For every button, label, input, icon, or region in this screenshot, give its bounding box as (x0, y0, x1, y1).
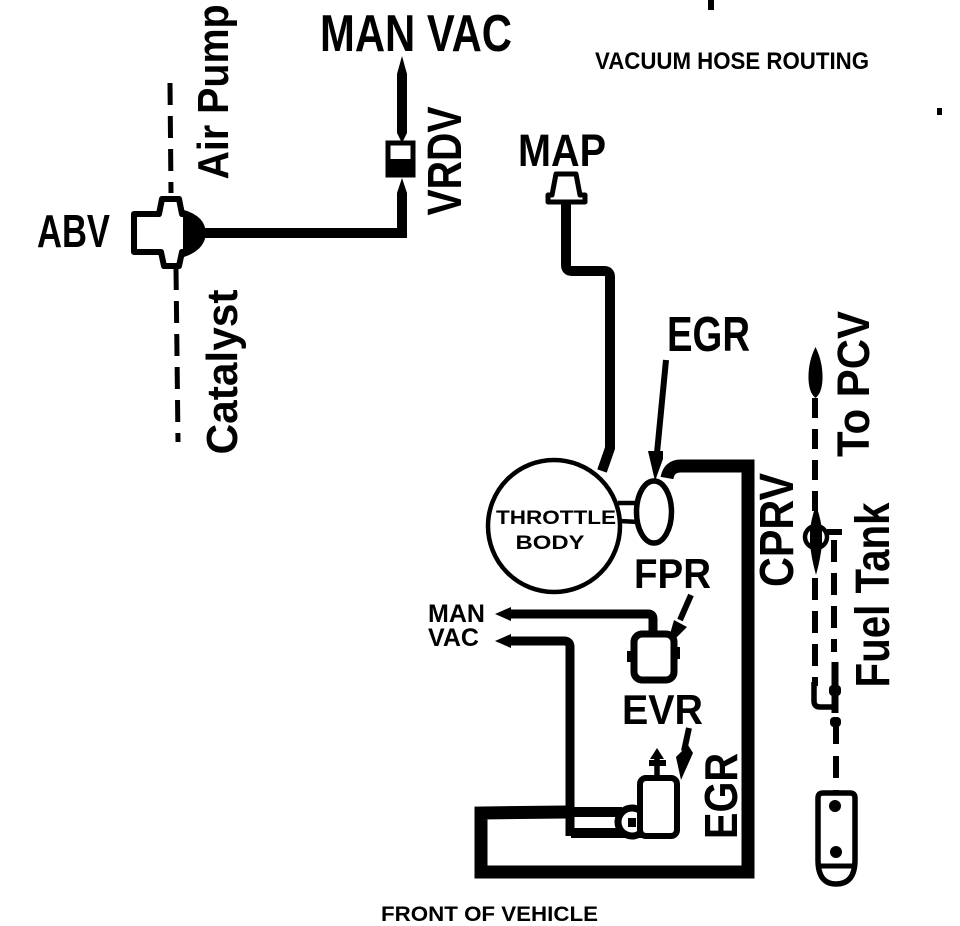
svg-text:VACUUM HOSE ROUTING: VACUUM HOSE ROUTING (595, 48, 869, 75)
svg-text:EGR: EGR (667, 308, 750, 362)
svg-text:To PCV: To PCV (828, 311, 879, 457)
svg-text:THROTTLE: THROTTLE (496, 508, 616, 529)
svg-text:MAP: MAP (518, 125, 606, 176)
svg-text:CPRV: CPRV (751, 473, 804, 587)
svg-text:Fuel Tank: Fuel Tank (847, 502, 900, 687)
svg-text:EVR: EVR (622, 686, 703, 733)
svg-text:Catalyst: Catalyst (198, 289, 247, 454)
svg-text:FPR: FPR (634, 550, 711, 597)
svg-text:Air Pump: Air Pump (189, 5, 238, 180)
svg-text:ABV: ABV (37, 205, 110, 257)
svg-text:EGR: EGR (695, 753, 747, 839)
svg-text:BODY: BODY (516, 533, 585, 554)
svg-text:VAC: VAC (428, 624, 479, 652)
svg-text:MAN VAC: MAN VAC (320, 5, 512, 63)
svg-text:FRONT OF VEHICLE: FRONT OF VEHICLE (381, 903, 598, 926)
svg-text:VRDV: VRDV (419, 107, 472, 216)
